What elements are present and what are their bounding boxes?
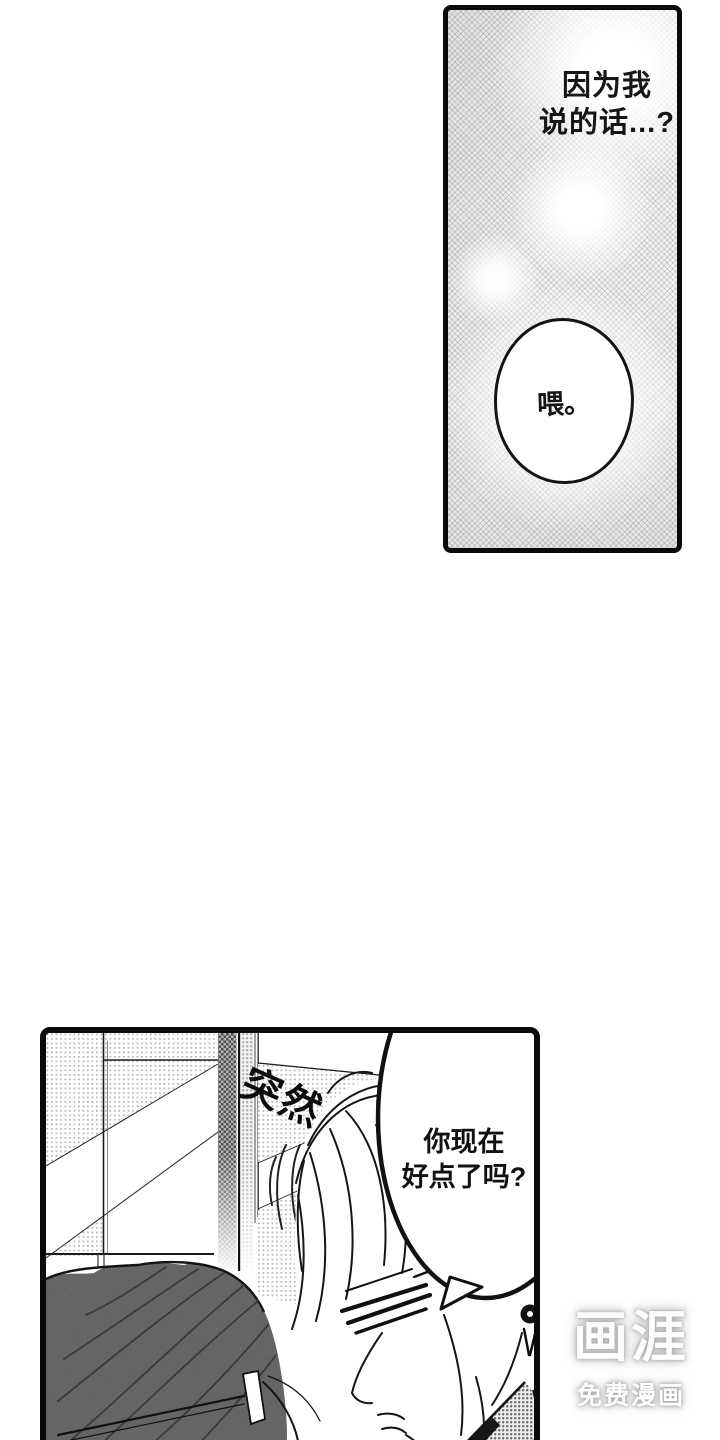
speech-bubble-top-text: 喂。 — [536, 381, 591, 422]
caption-line-1: 因为我 — [532, 68, 682, 105]
speech-bubble-bottom-line-1: 你现在 — [398, 1125, 530, 1160]
site-watermark: 画涯 免费漫画 — [556, 1306, 706, 1412]
watermark-logo: 画涯 — [556, 1306, 706, 1368]
narration-caption: 因为我 说的话...? — [532, 68, 682, 142]
speech-bubble-bottom-text: 你现在 好点了吗? — [398, 1125, 530, 1195]
panel-bottom: 突然 你现在 好点了吗? — [40, 1027, 540, 1440]
caption-line-2: 说的话...? — [532, 105, 682, 142]
panel-top: 因为我 说的话...? 喂。 — [443, 5, 682, 553]
watermark-tagline: 免费漫画 — [556, 1376, 706, 1412]
manga-page: 因为我 说的话...? 喂。 — [0, 0, 720, 1440]
speech-bubble-bottom-line-2: 好点了吗? — [398, 1160, 530, 1195]
